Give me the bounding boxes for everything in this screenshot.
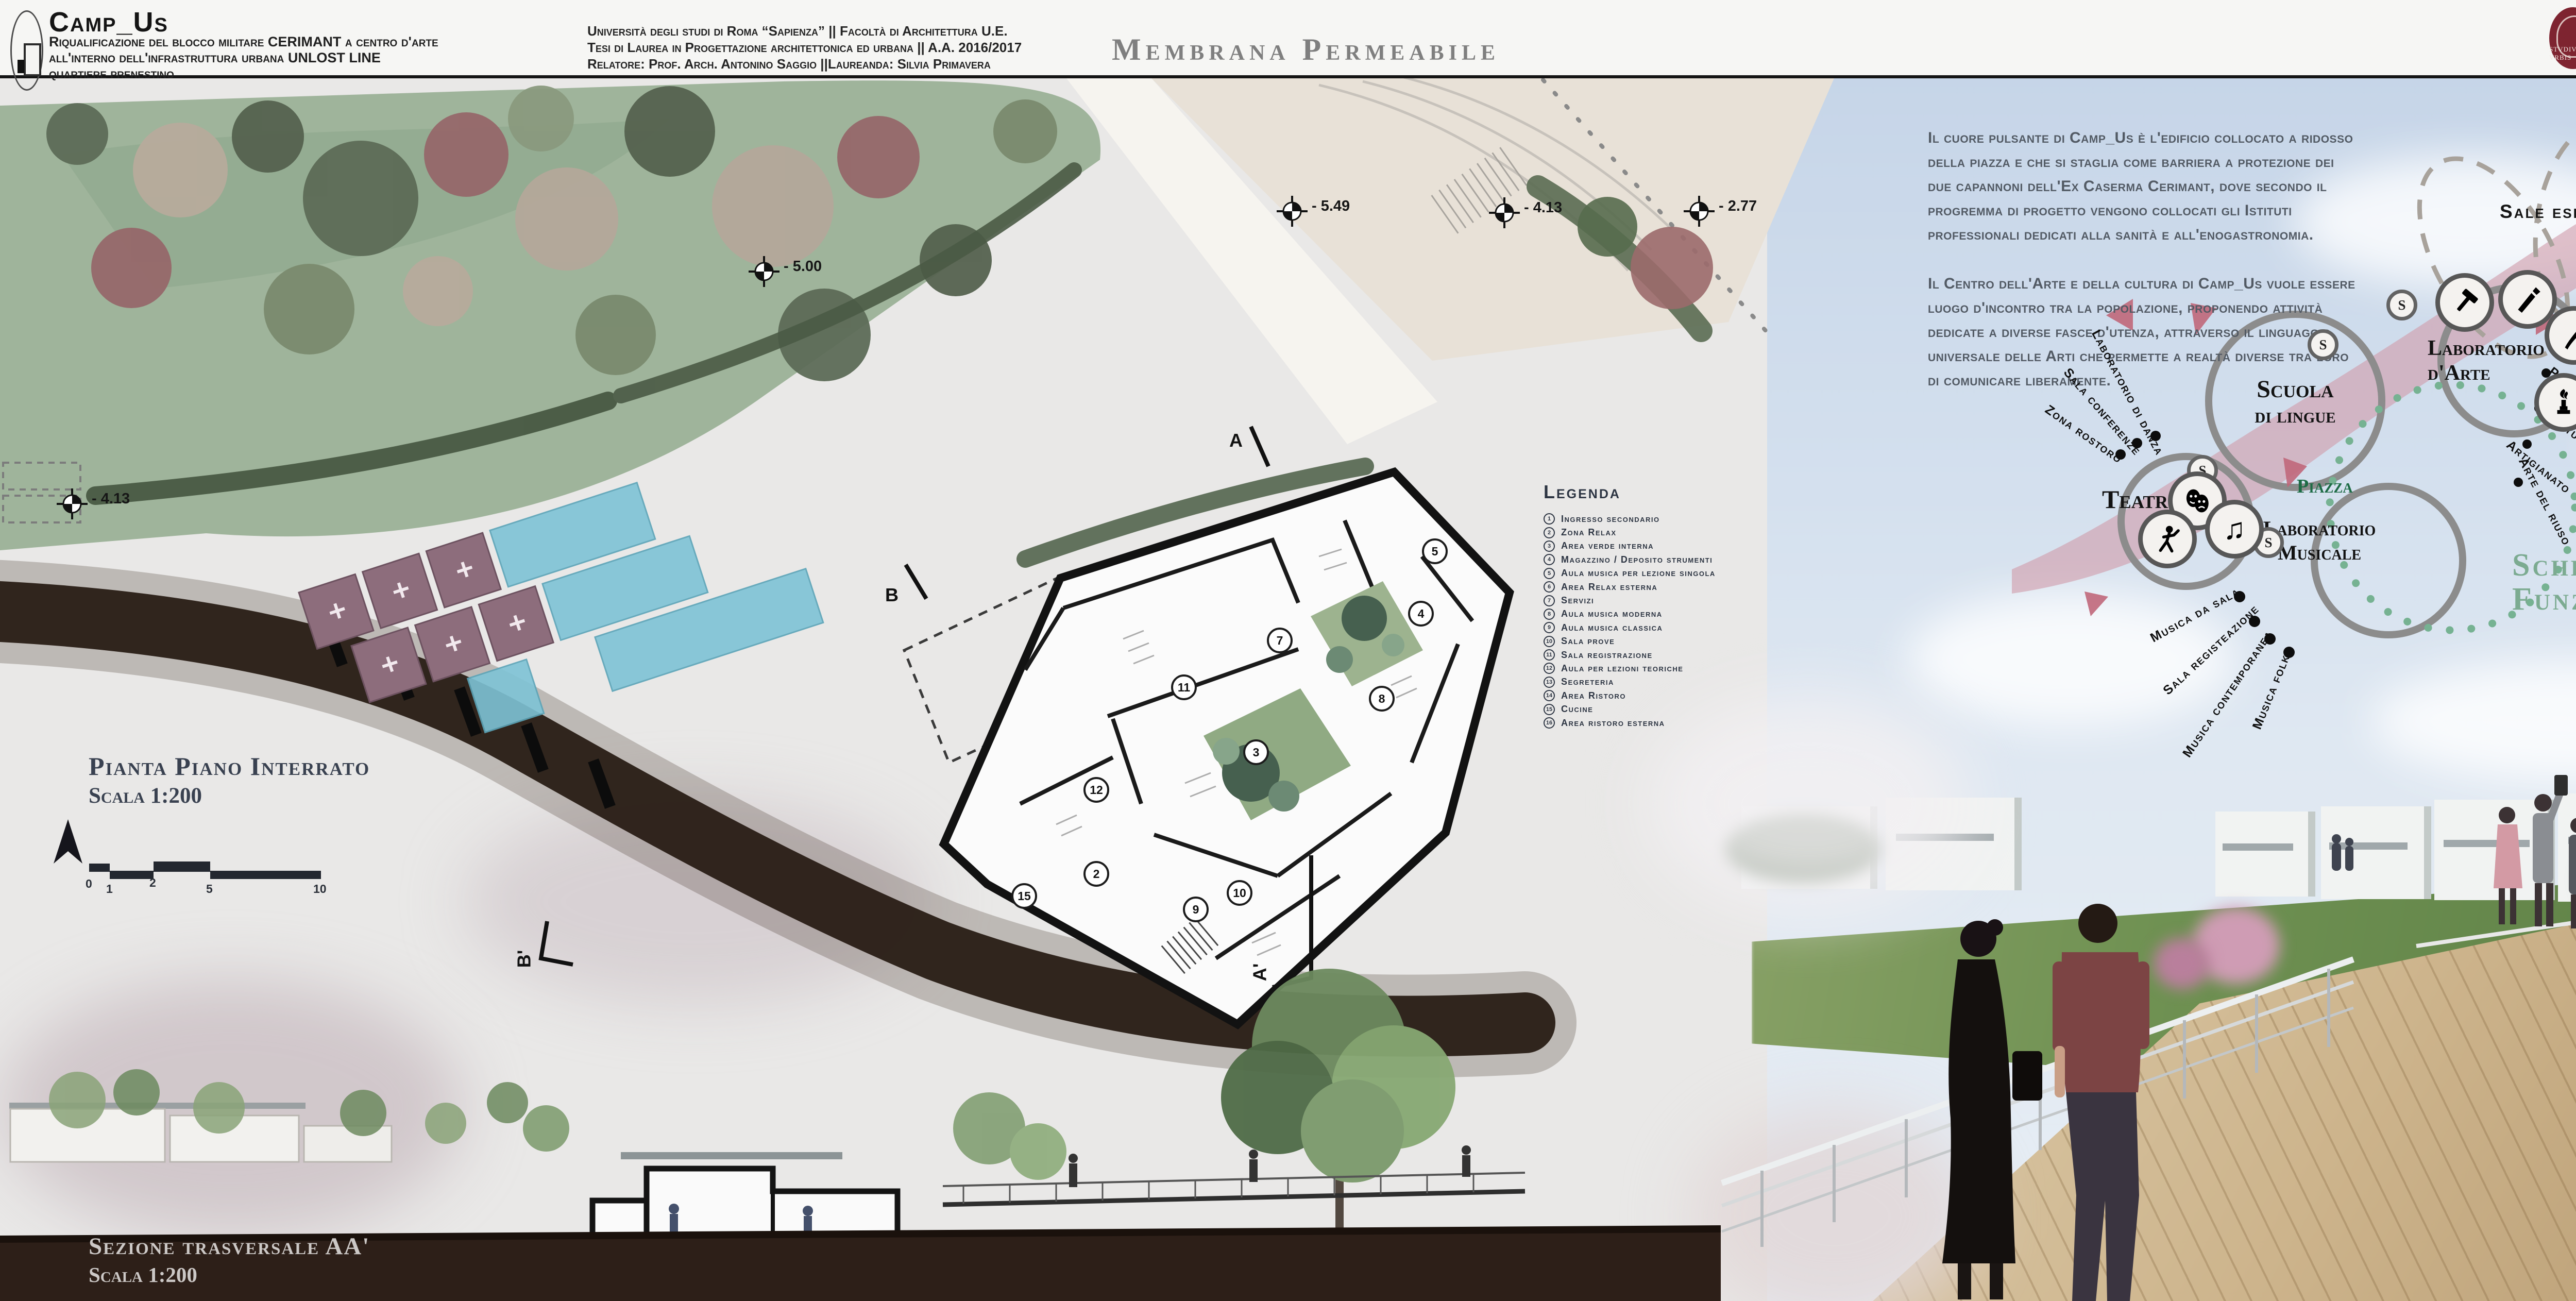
legend-item: 11Sala registrazione	[1544, 648, 1729, 662]
project-subtitle-line2: all'interno dell'infrastruttura urbana U…	[49, 50, 438, 66]
intro-paragraph-1: Il cuore pulsante di Camp_Us è l'edifici…	[1928, 126, 2361, 247]
scuola-line2: di lingue	[2218, 403, 2372, 428]
legend-item: 13Segreteria	[1544, 675, 1729, 689]
legend-item: 3Area verde interna	[1544, 539, 1729, 553]
legend-label: Magazzino / Deposito strumenti	[1561, 554, 1713, 565]
university-credits: Università degli studi di Roma “Sapienza…	[587, 23, 1022, 72]
dancer-icon	[2138, 510, 2197, 568]
legend-label: Area Ristoro	[1561, 690, 1626, 701]
scuola-line1: Scuola	[2218, 375, 2372, 403]
legend-label: Segreteria	[1561, 677, 1614, 687]
legend-number: 6	[1544, 581, 1555, 593]
university-line2: Tesi di Laurea in Progettazione architet…	[587, 39, 1022, 56]
room-number: 12	[1083, 777, 1109, 803]
legend-item: 12Aula per lezioni teoriche	[1544, 662, 1729, 675]
legend-label: Aula musica per lezione singola	[1561, 568, 1716, 579]
legend: Legenda 1Ingresso secondario 2Zona Relax…	[1544, 481, 1729, 730]
legend-item: 2Zona Relax	[1544, 526, 1729, 539]
level-icon	[1276, 195, 1309, 228]
red-tree	[1631, 227, 1713, 309]
person-silhouette-woman	[1942, 919, 2042, 1299]
elevation-marker: - 2.77	[1683, 195, 1757, 228]
legend-item: 9Aula musica classica	[1544, 621, 1729, 634]
legend-label: Aula per lezioni teoriche	[1561, 663, 1683, 674]
legend-number: 7	[1544, 595, 1555, 606]
plan-scale: Scala 1:200	[89, 783, 202, 808]
legend-number: 9	[1544, 622, 1555, 633]
project-subtitle-line1: Riqualificazione del blocco militare CER…	[49, 34, 438, 50]
legend-item: 8Aula musica moderna	[1544, 607, 1729, 621]
scale-bar	[89, 861, 321, 879]
project-title: Camp_Us	[49, 6, 168, 38]
legend-label: Area verde interna	[1561, 540, 1654, 551]
legend-number: 4	[1544, 554, 1555, 565]
room-number: 15	[1011, 883, 1037, 909]
legend-item: 10Sala prove	[1544, 635, 1729, 648]
person-silhouette-group	[2332, 775, 2576, 928]
legend-label: Aula musica classica	[1561, 622, 1663, 633]
green-tree	[1578, 197, 1637, 257]
elevation-value: - 5.49	[1312, 198, 1350, 215]
section-mark-a1: A'	[1249, 964, 1270, 982]
scale-tick: 1	[106, 882, 113, 896]
legend-label: Ingresso secondario	[1561, 514, 1660, 525]
scheme-piazza-label: Piazza	[2297, 475, 2353, 498]
hammer-icon	[2435, 273, 2494, 332]
project-logo-block	[18, 60, 24, 73]
legend-label: Zona Relax	[1561, 527, 1617, 538]
legend-number: 3	[1544, 540, 1555, 552]
room-number: 4	[1408, 601, 1434, 627]
room-number: 11	[1171, 674, 1197, 700]
legend-number: 14	[1544, 690, 1555, 701]
legend-number: 8	[1544, 609, 1555, 620]
scheme-title-line2: Funzionale	[2512, 581, 2576, 618]
legend-number: 13	[1544, 677, 1555, 688]
legend-label: Sala prove	[1561, 636, 1615, 647]
level-icon	[1683, 195, 1716, 228]
section-scale: Scala 1:200	[89, 1262, 197, 1287]
level-icon	[1488, 196, 1521, 229]
intro-paragraph-2: Il Centro dell'Arte e della cultura di C…	[1928, 272, 2361, 393]
legend-number: 11	[1544, 649, 1555, 661]
legend-item: 15Cucine	[1544, 702, 1729, 716]
room-number: 7	[1267, 628, 1293, 653]
project-logo-door	[24, 43, 41, 76]
legend-item: 1Ingresso secondario	[1544, 512, 1729, 526]
legend-label: Aula musica moderna	[1561, 609, 1663, 619]
level-icon	[56, 487, 89, 520]
university-line1: Università degli studi di Roma “Sapienza…	[587, 23, 1022, 39]
room-number: 2	[1083, 861, 1109, 887]
legend-title: Legenda	[1544, 481, 1729, 503]
elevation-value: - 4.13	[92, 491, 130, 508]
room-number: 8	[1369, 686, 1395, 712]
legend-item: 14Area Ristoro	[1544, 689, 1729, 702]
elevation-value: - 5.00	[784, 258, 822, 275]
presentation-board: Camp_Us Riqualificazione del blocco mili…	[0, 0, 2576, 1301]
legend-number: 12	[1544, 663, 1555, 674]
legend-number: 10	[1544, 636, 1555, 647]
legend-number: 1	[1544, 513, 1555, 525]
legend-item: 16Area ristoro esterna	[1544, 716, 1729, 730]
legend-item: 5Aula musica per lezione singola	[1544, 567, 1729, 580]
elevation-value: - 2.77	[1719, 198, 1757, 215]
person-silhouette-man	[2053, 904, 2149, 1301]
service-badge: S	[2386, 290, 2417, 320]
music-notes-icon: ♫	[2205, 500, 2264, 559]
legend-number: 15	[1544, 704, 1555, 715]
legend-item: 4Magazzino / Deposito strumenti	[1544, 553, 1729, 566]
legend-number: 5	[1544, 568, 1555, 579]
project-subtitle: Riqualificazione del blocco militare CER…	[49, 34, 438, 82]
legend-item: 7Servizi	[1544, 594, 1729, 607]
render-railing	[1722, 911, 2576, 1247]
level-icon	[748, 255, 781, 288]
room-number: 10	[1227, 880, 1252, 906]
legend-label: Servizi	[1561, 595, 1594, 606]
elevation-marker: - 5.00	[748, 255, 822, 288]
elevation-marker: - 4.13	[1488, 196, 1562, 229]
legend-label: Area ristoro esterna	[1561, 718, 1665, 729]
scale-tick: 0	[86, 877, 92, 891]
elevation-marker: - 4.13	[56, 487, 130, 520]
university-line3: Relatore: Prof. Arch. Antonino Saggio ||…	[587, 56, 1022, 72]
scale-tick: 10	[313, 882, 327, 896]
scale-tick: 2	[149, 876, 156, 890]
section-title: Sezione trasversale AA'	[89, 1232, 370, 1260]
sapienza-emblem-figure	[2556, 15, 2576, 58]
room-number: 9	[1183, 897, 1209, 922]
project-subtitle-line3: quartiere prenestino	[49, 66, 438, 82]
legend-item: 6Area Relax esterna	[1544, 580, 1729, 594]
plan-title: Pianta Piano Interrato	[89, 751, 370, 781]
scheme-title-line1: Schema	[2512, 547, 2576, 584]
legend-number: 16	[1544, 717, 1555, 729]
legend-label: Sala registrazione	[1561, 650, 1653, 661]
scheme-sale-espositive-label: Sale espositive	[2500, 201, 2576, 223]
intro-text: Il cuore pulsante di Camp_Us è l'edifici…	[1928, 126, 2361, 417]
north-arrow	[54, 819, 82, 864]
scheme-node-scuola: Scuola di lingue	[2218, 375, 2372, 428]
scale-tick: 5	[206, 882, 213, 896]
board-title: Membrana Permeabile	[1112, 32, 1500, 67]
elevation-value: - 4.13	[1524, 199, 1562, 216]
legend-label: Area Relax esterna	[1561, 582, 1657, 593]
pavement	[1066, 77, 1834, 444]
elevation-marker: - 5.49	[1276, 195, 1350, 228]
section-mark-a: A	[1229, 430, 1243, 451]
room-number: 5	[1422, 538, 1448, 564]
service-badge: S	[2308, 329, 2338, 360]
legend-number: 2	[1544, 527, 1555, 538]
section-mark-b: B	[885, 584, 899, 606]
section-mark-b1: B'	[513, 950, 535, 968]
pen-icon	[2498, 270, 2557, 329]
legend-label: Cucine	[1561, 704, 1593, 715]
room-number: 3	[1243, 739, 1269, 765]
